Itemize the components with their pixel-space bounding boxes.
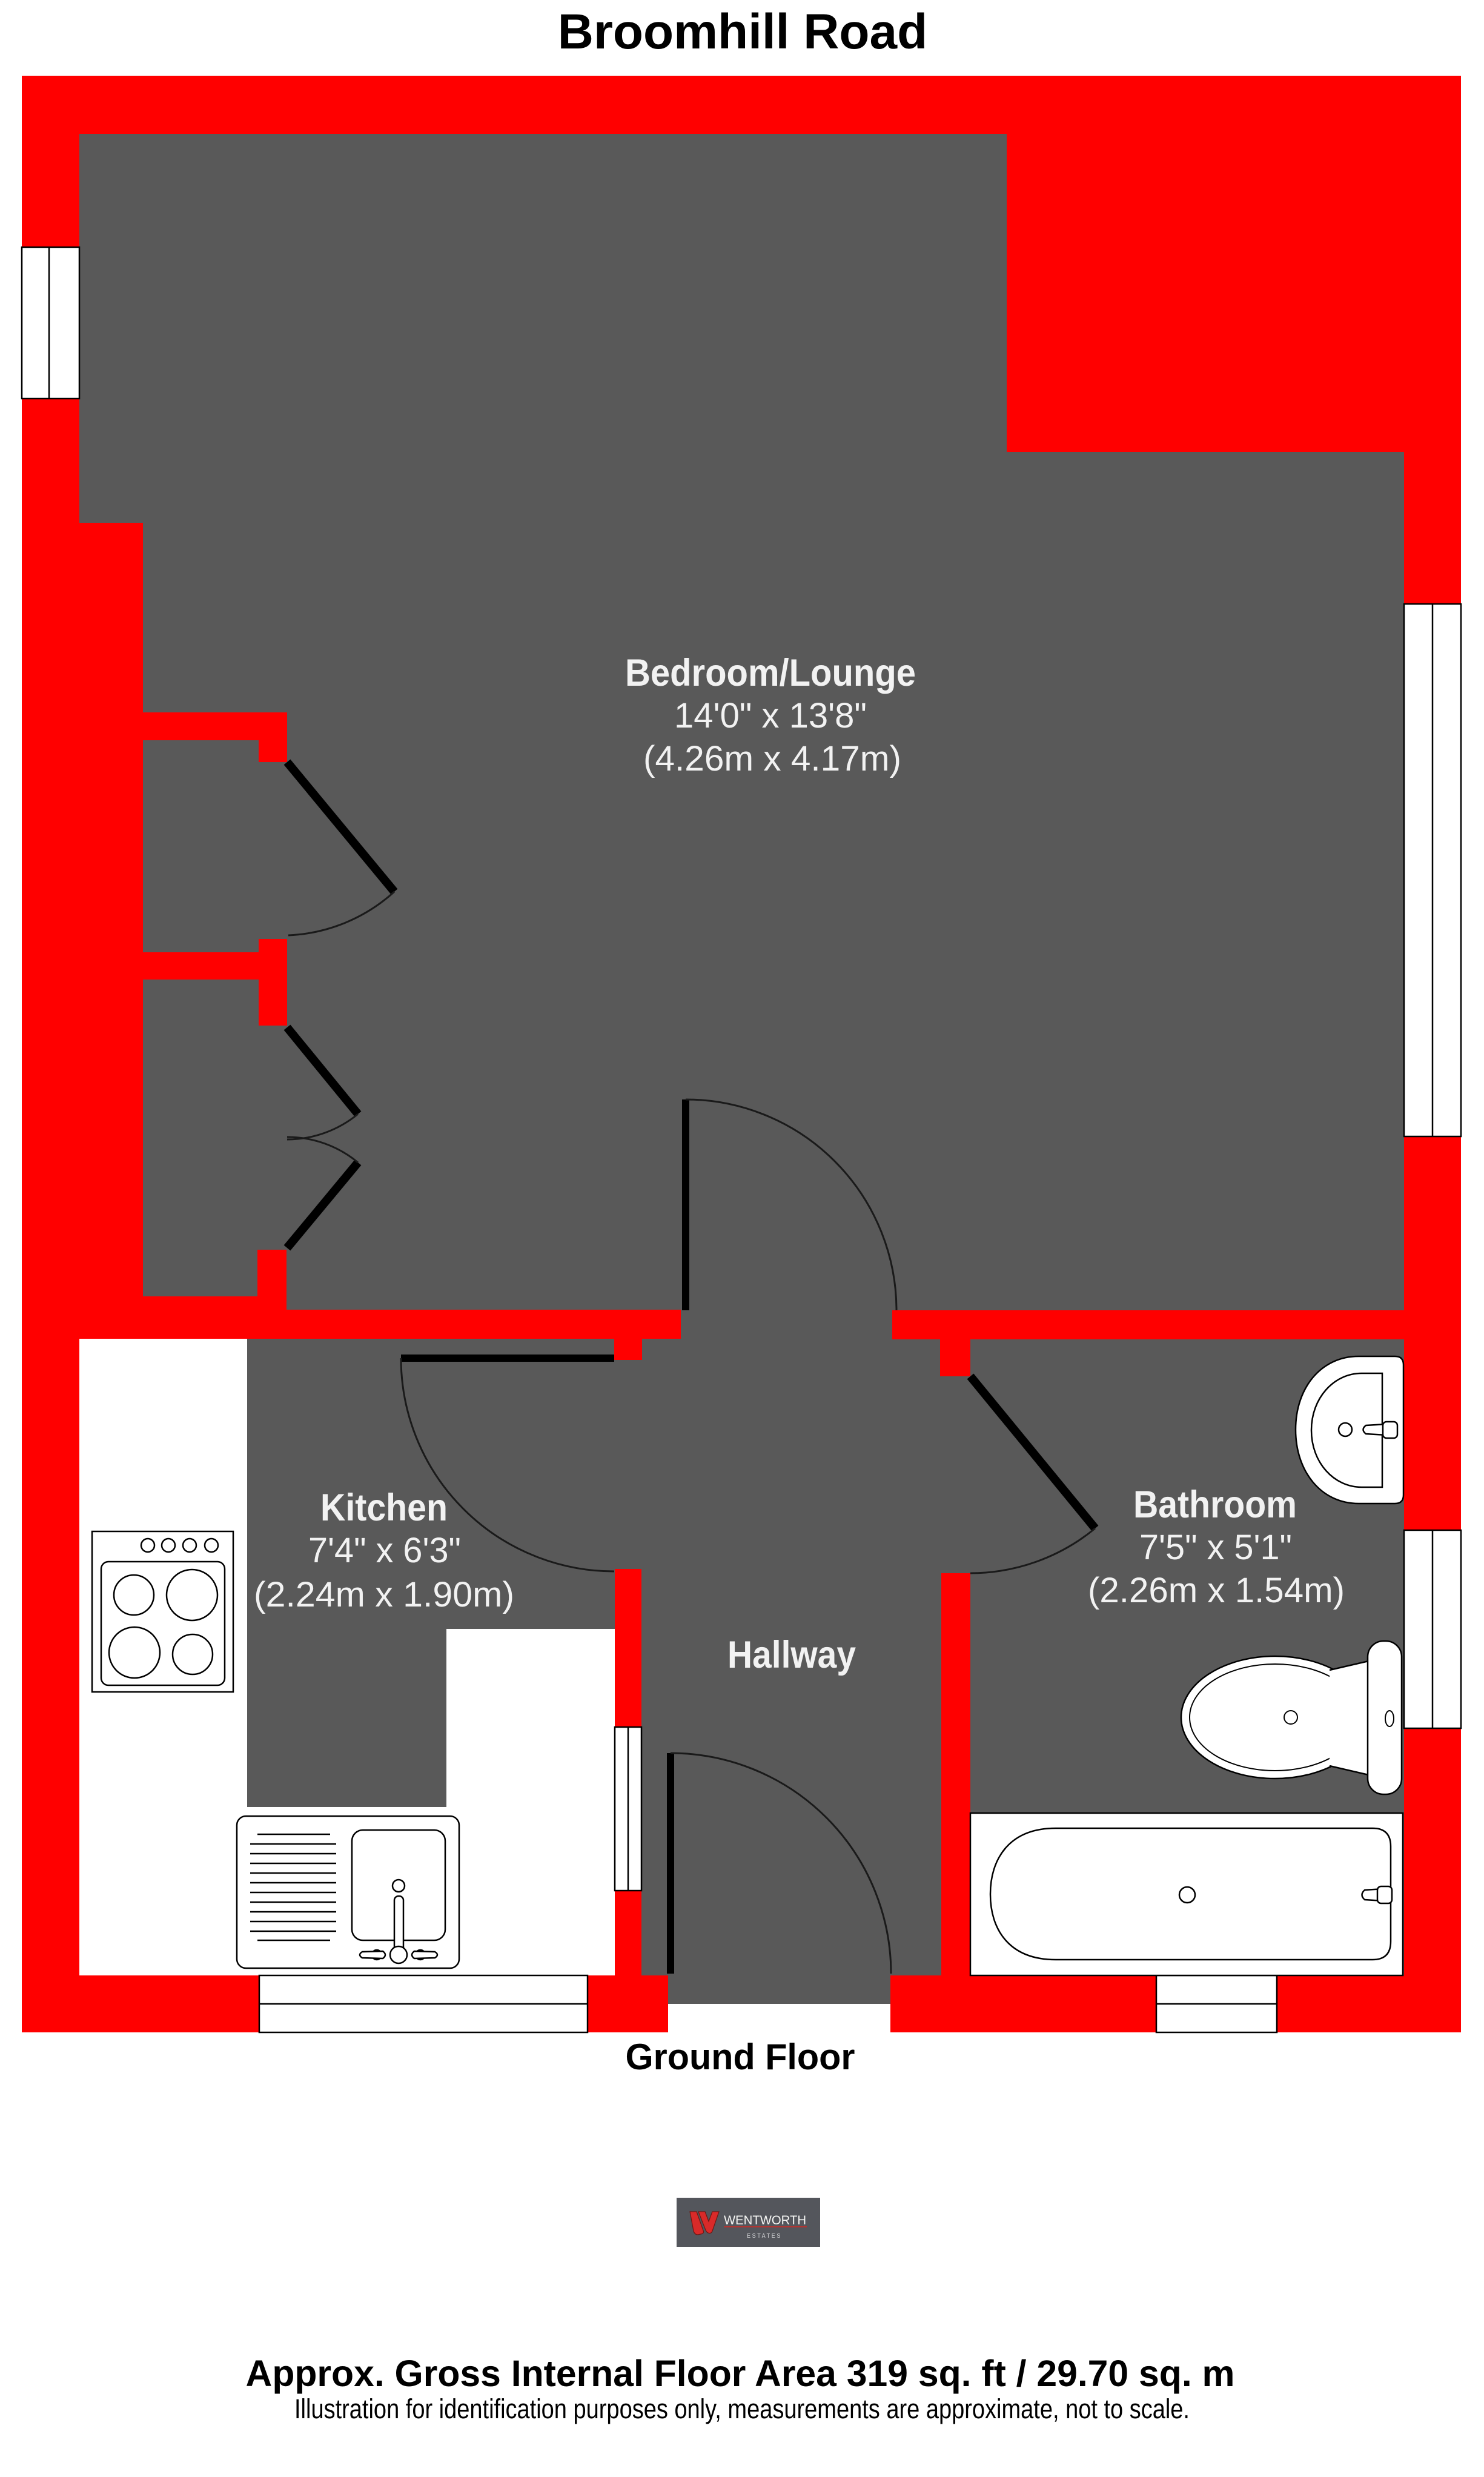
svg-text:Broomhill Road: Broomhill Road [558,4,927,59]
svg-text:Kitchen: Kitchen [320,1487,448,1529]
svg-text:Bathroom: Bathroom [1133,1484,1297,1526]
svg-text:Bedroom/Lounge: Bedroom/Lounge [625,652,916,694]
svg-text:7'5" x 5'1": 7'5" x 5'1" [1139,1528,1292,1567]
svg-text:(2.26m x 1.54m): (2.26m x 1.54m) [1088,1571,1345,1610]
svg-text:Hallway: Hallway [727,1634,856,1676]
svg-text:Approx. Gross Internal Floor A: Approx. Gross Internal Floor Area 319 sq… [246,2353,1235,2394]
svg-text:7'4" x 6'3": 7'4" x 6'3" [308,1531,461,1570]
svg-text:Illustration for identificatio: Illustration for identification purposes… [294,2393,1190,2424]
svg-text:(2.24m x 1.90m): (2.24m x 1.90m) [254,1575,514,1614]
svg-text:ESTATES: ESTATES [747,2232,782,2240]
svg-text:WENTWORTH: WENTWORTH [724,2213,806,2227]
svg-text:14'0" x 13'8": 14'0" x 13'8" [674,696,867,735]
svg-text:(4.26m x 4.17m): (4.26m x 4.17m) [643,739,901,778]
svg-text:Ground Floor: Ground Floor [626,2037,855,2077]
